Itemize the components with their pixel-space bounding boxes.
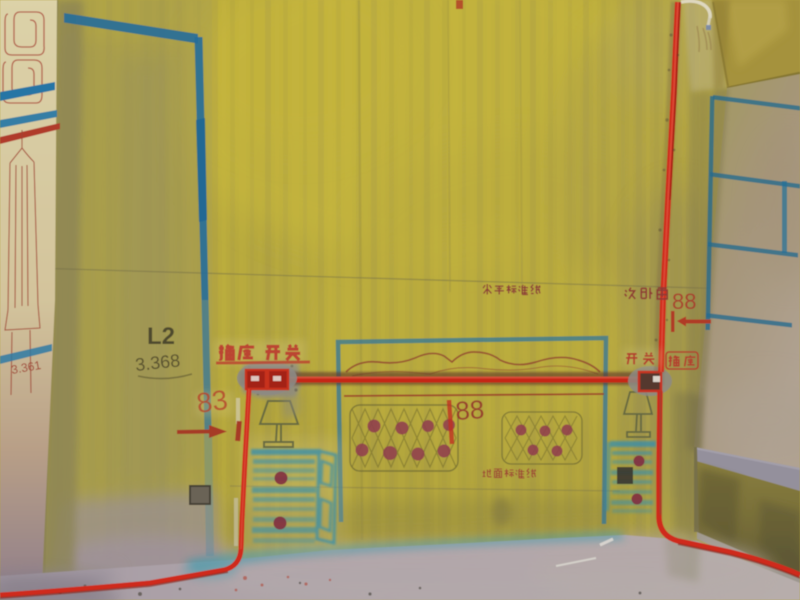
svg-text:88: 88 (672, 289, 696, 314)
svg-text:83: 83 (195, 384, 230, 419)
svg-text:88: 88 (454, 394, 485, 426)
svg-text:L2: L2 (147, 323, 175, 350)
